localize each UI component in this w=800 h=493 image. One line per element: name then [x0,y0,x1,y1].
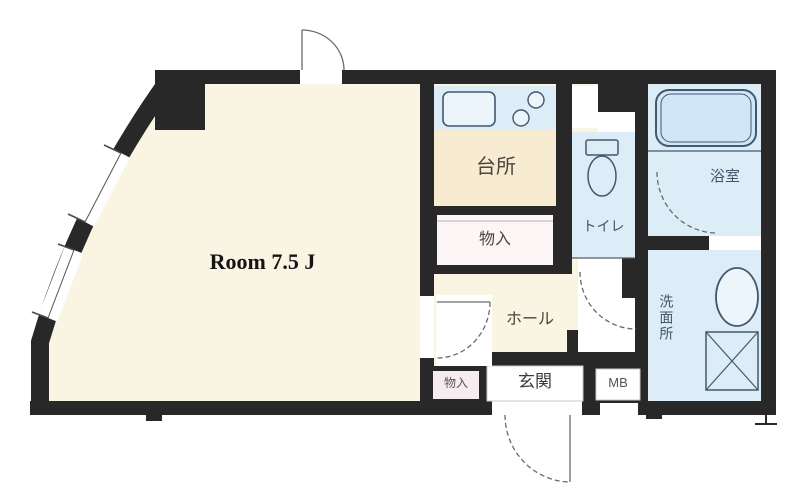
washroom-label: 洗面所 [658,274,673,362]
kitchen-label: 台所 [434,156,558,178]
bathroom-label: 浴室 [693,169,757,186]
toilet-label: トイレ [572,219,635,234]
room-label: Room 7.5 J [180,250,345,274]
balcony-door-swing [302,30,344,70]
floor-plan-drawing [0,0,800,493]
kitchen-sink-icon [443,92,495,126]
meter-box-label: MB [596,376,640,390]
washbasin-icon [716,268,758,326]
entrance-label: 玄関 [487,373,583,392]
hall-label: ホール [470,311,590,329]
entrance-storage-label: 物入 [433,377,479,390]
room-door-area [436,295,492,366]
entrance-door-swing [505,415,570,482]
bathtub-icon [656,90,756,146]
floor-plan: Room 7.5 J 台所 物入 トイレ 浴室 洗面所 ホール 玄関 MB 物入 [0,0,800,493]
toilet-floor [572,132,635,258]
storage-label: 物入 [437,231,553,249]
